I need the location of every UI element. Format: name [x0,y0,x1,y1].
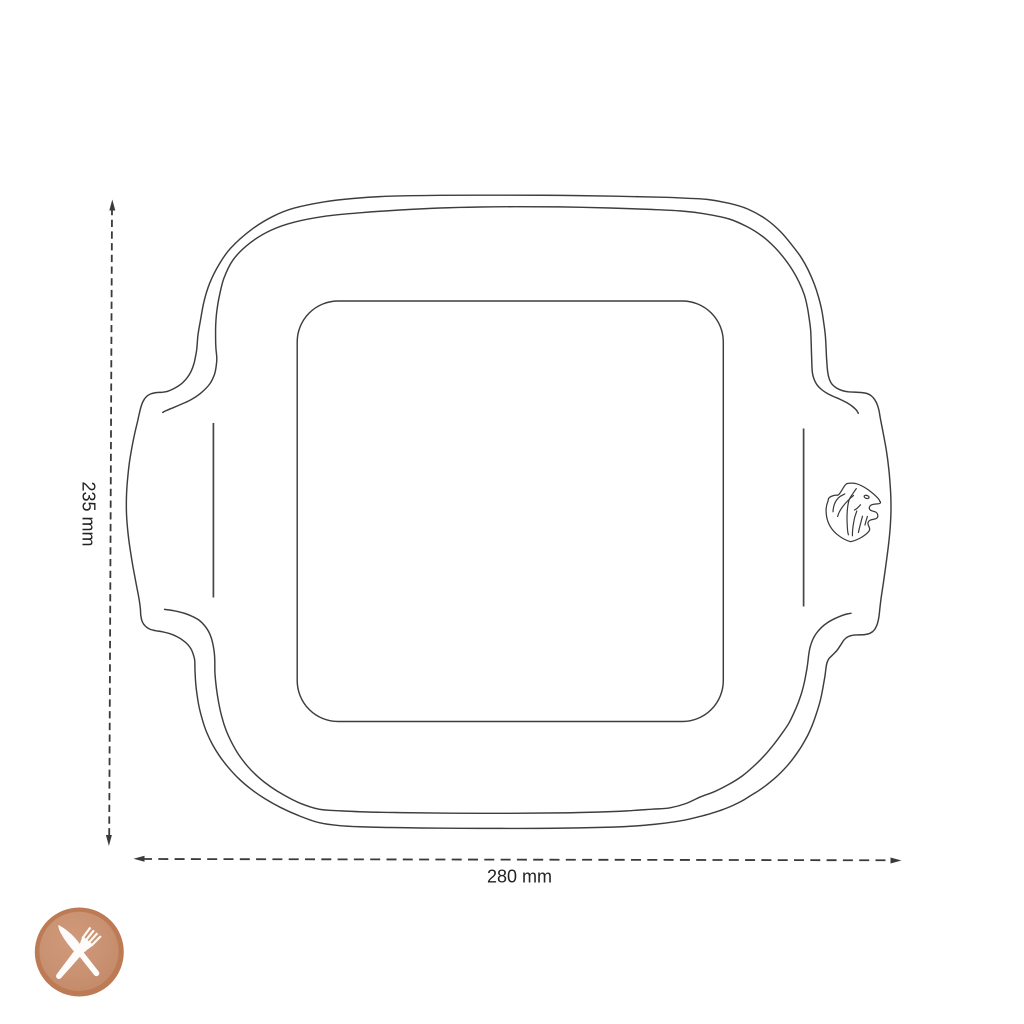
svg-text:280 mm: 280 mm [487,867,552,887]
svg-text:235 mm: 235 mm [79,481,99,546]
